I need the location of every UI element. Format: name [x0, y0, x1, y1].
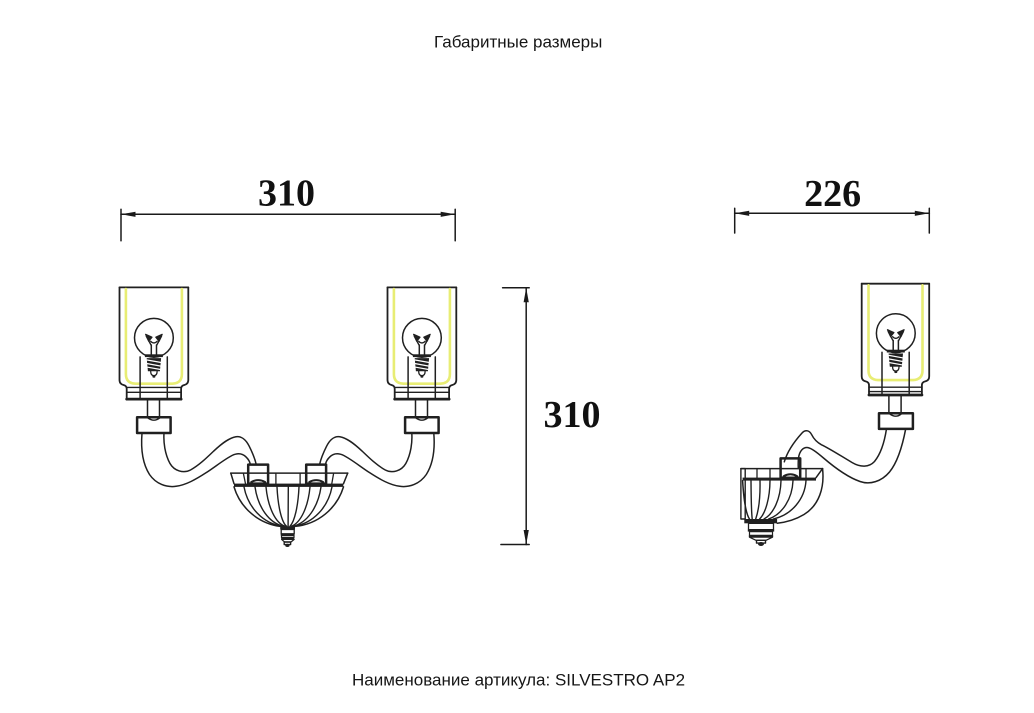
svg-text:Наименование артикула: SILVEST: Наименование артикула: SILVESTRO AP2	[352, 671, 685, 690]
svg-text:Габаритные размеры: Габаритные размеры	[434, 33, 602, 52]
svg-text:310: 310	[258, 172, 315, 214]
svg-text:226: 226	[804, 173, 861, 215]
svg-text:310: 310	[544, 394, 601, 436]
